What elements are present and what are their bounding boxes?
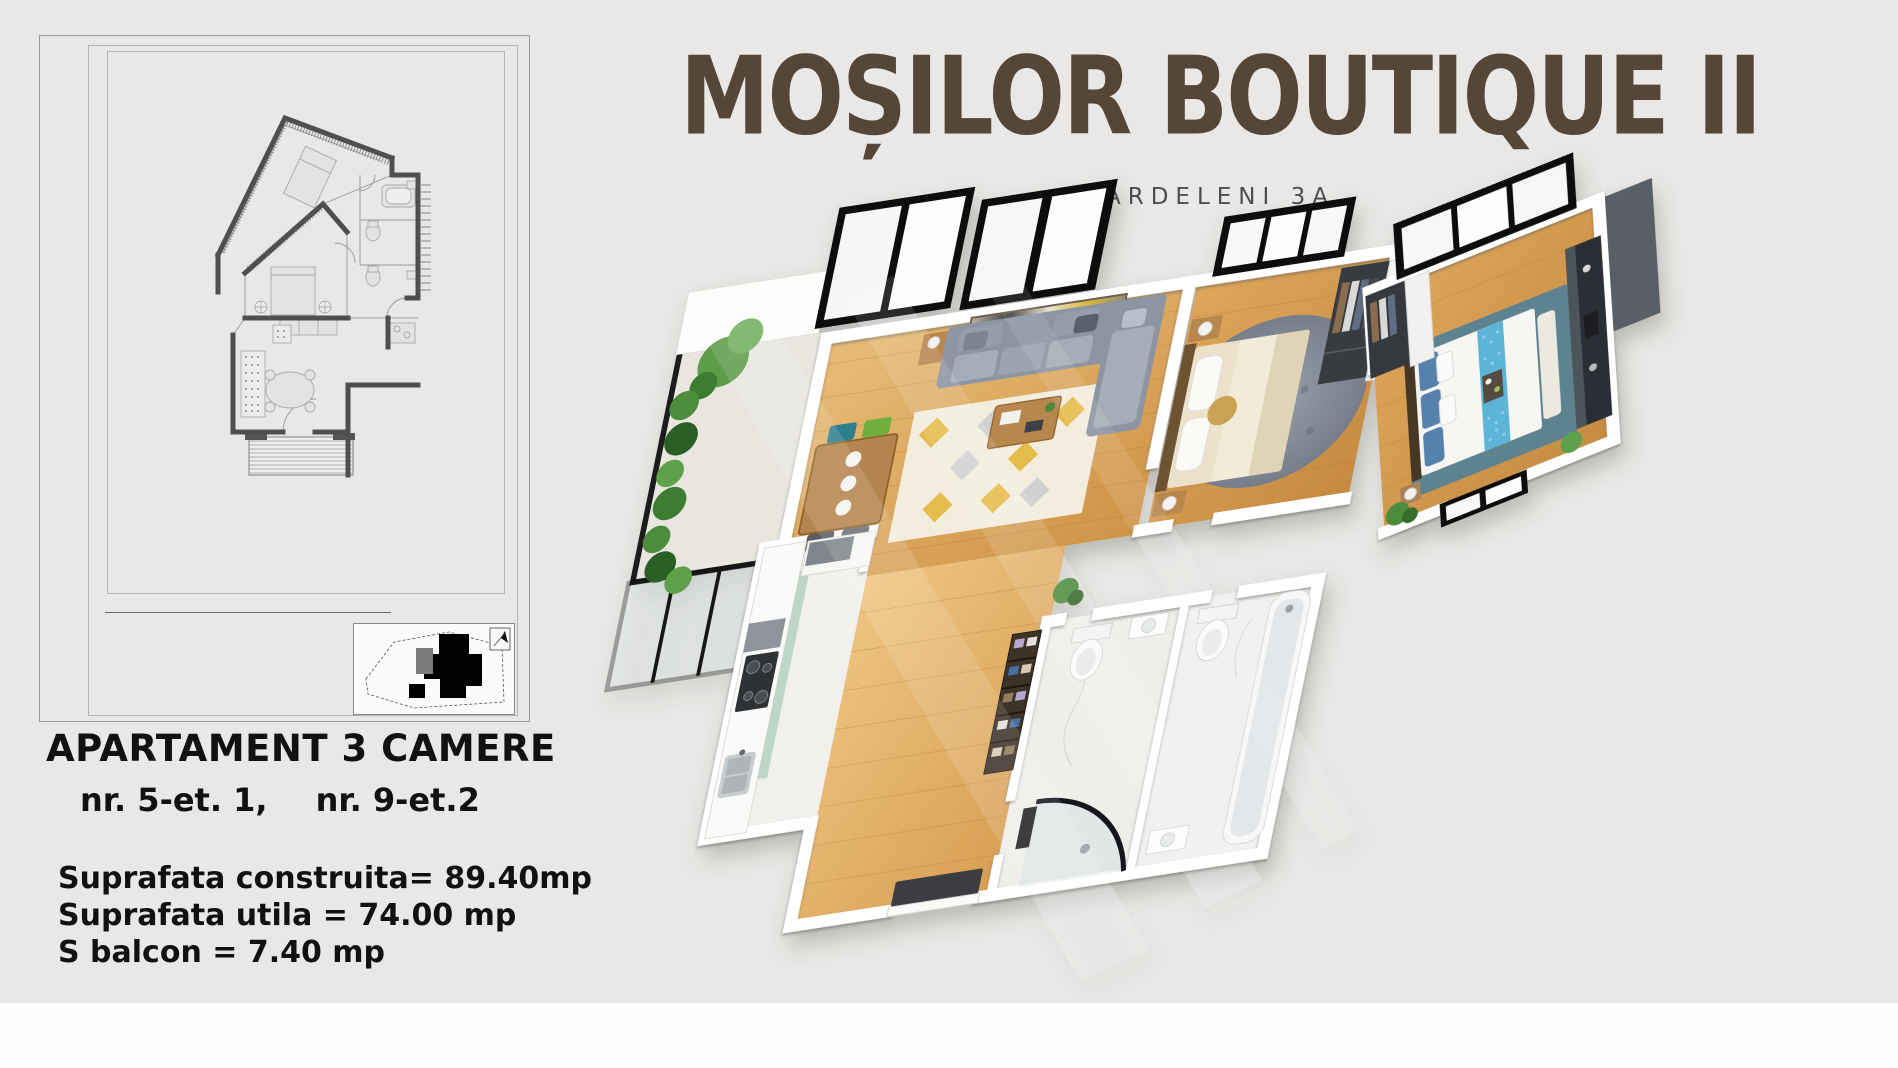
apartment-3d-scene — [549, 68, 1744, 980]
page-canvas: APARTAMENT 3 CAMERE nr. 5-et. 1, nr. 9-e… — [0, 0, 1898, 1068]
floorplan-3d — [0, 0, 1898, 1068]
footer-strip — [0, 1003, 1898, 1068]
bay-window-right — [959, 179, 1118, 311]
bedroom-2 — [1362, 122, 1669, 551]
